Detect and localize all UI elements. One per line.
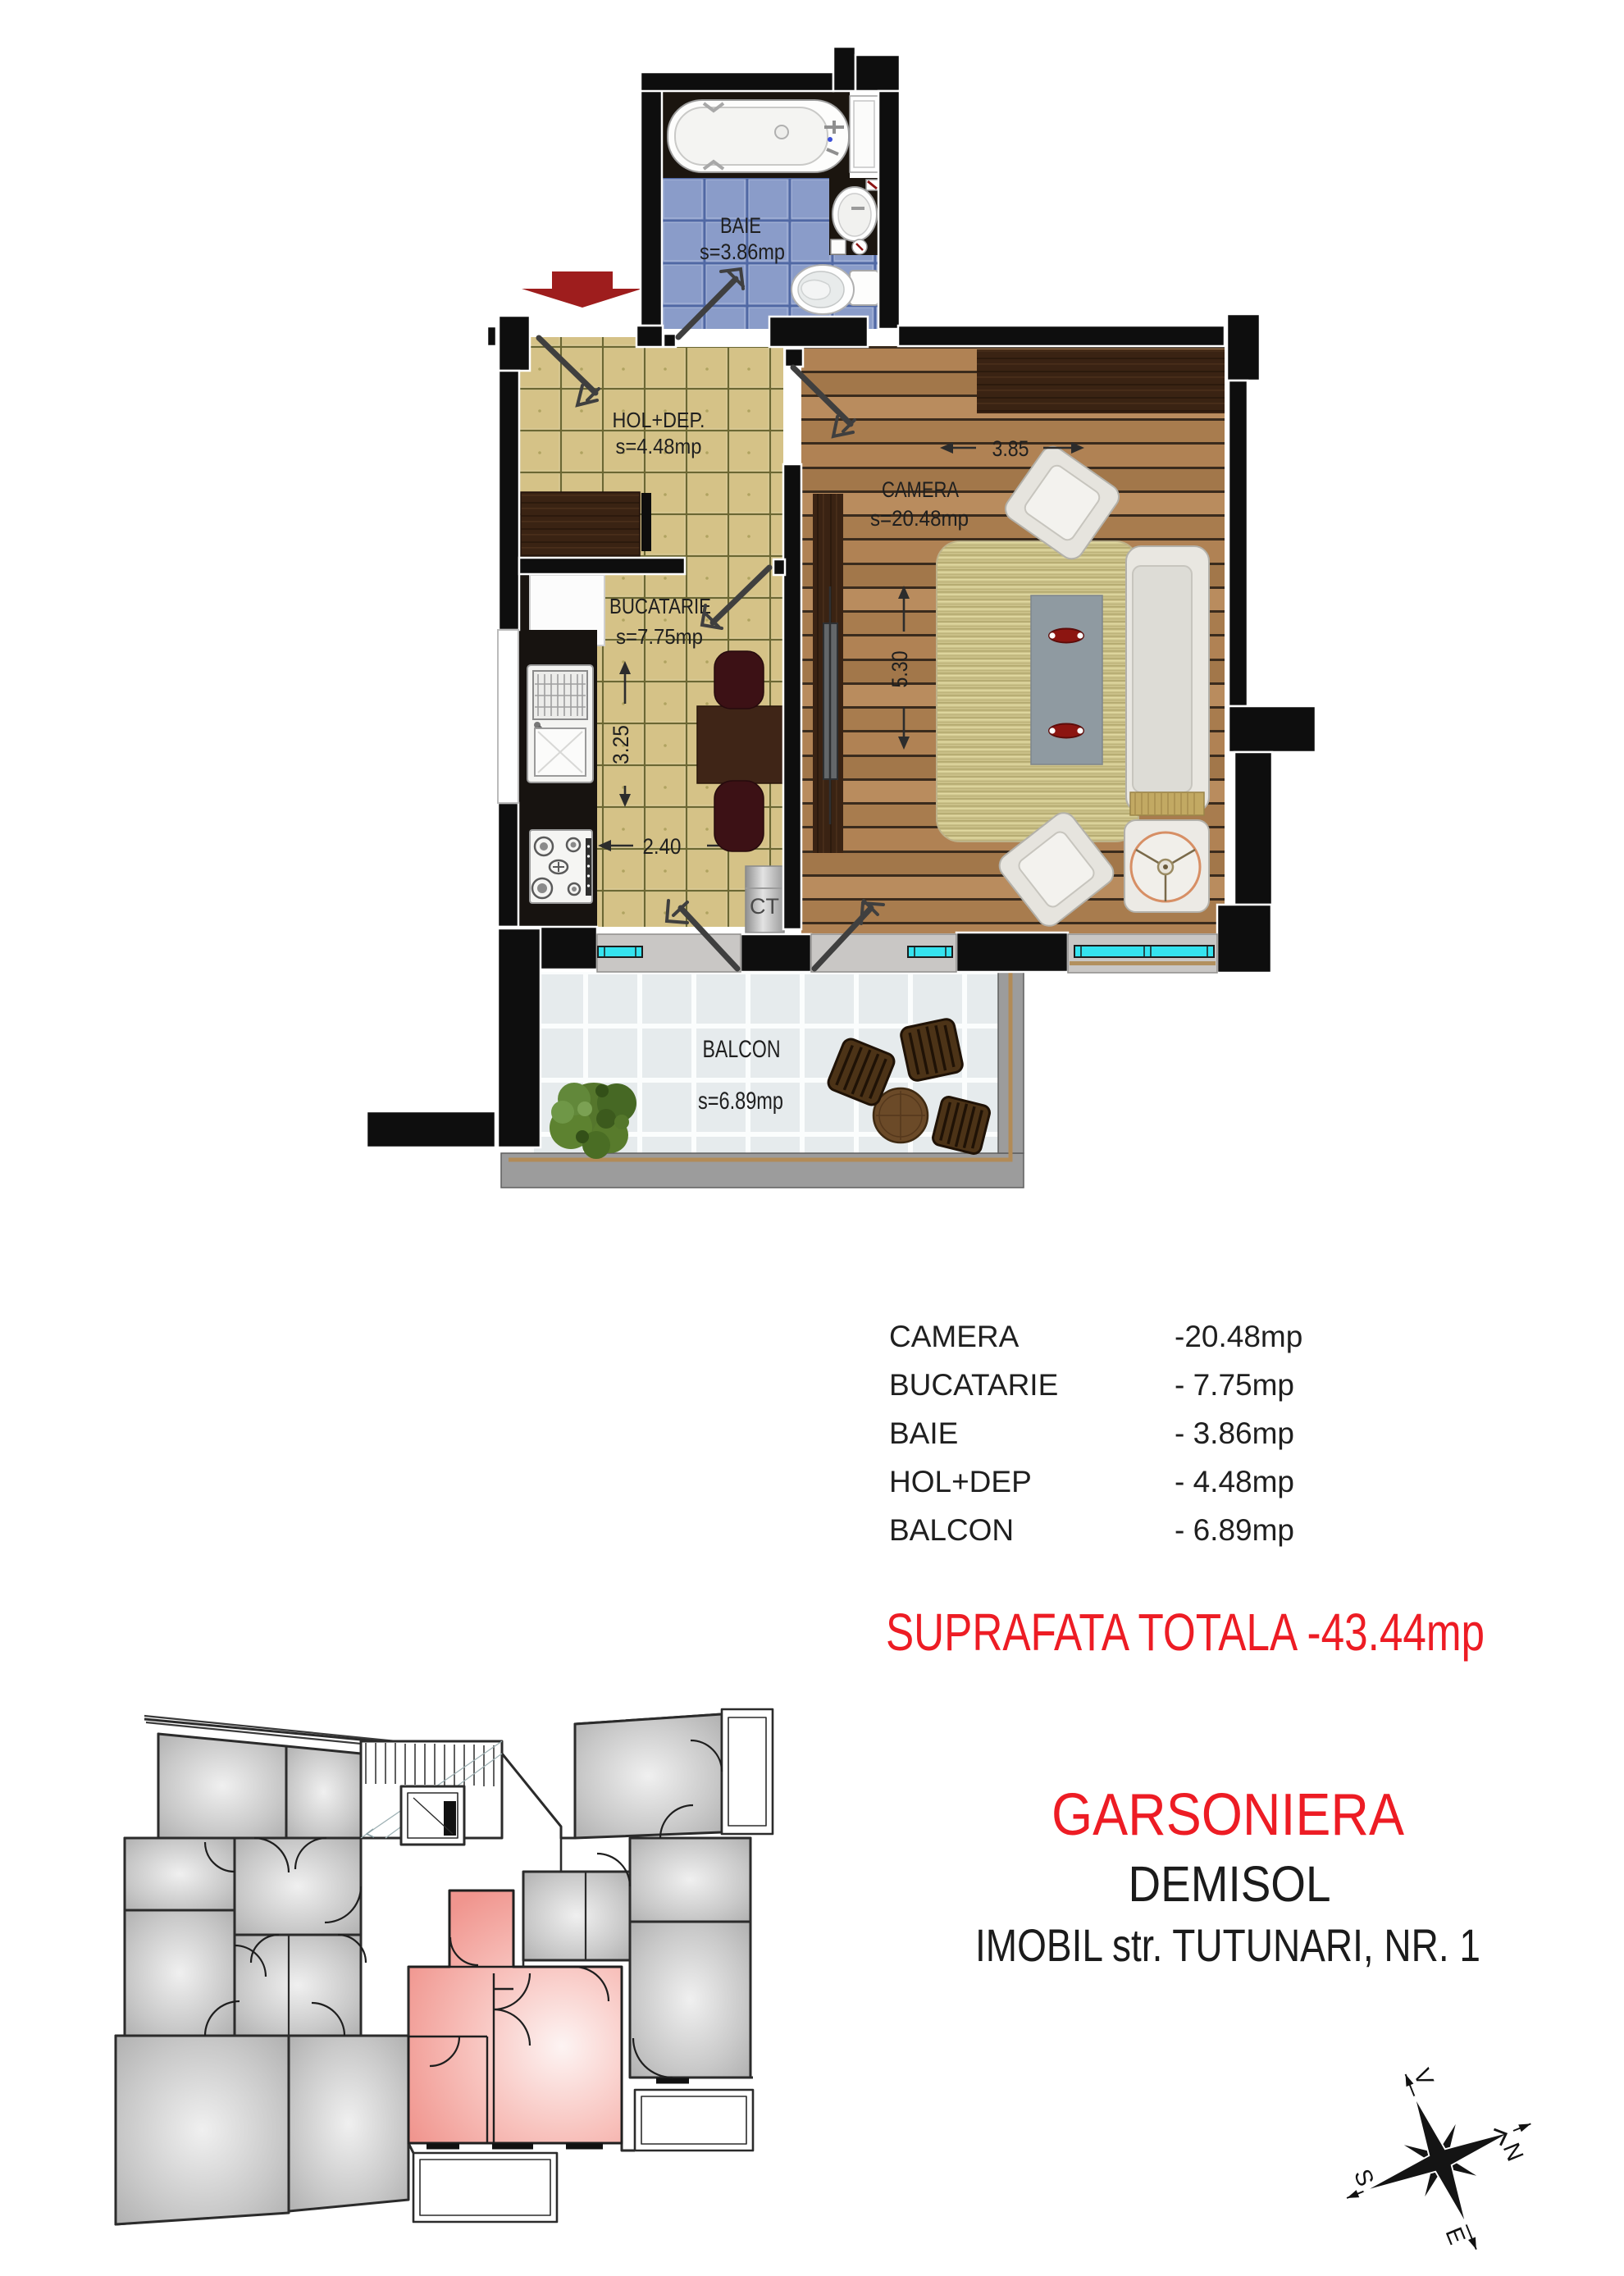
svg-text:BAIE: BAIE [889, 1416, 958, 1450]
svg-text:BAIE: BAIE [720, 213, 761, 238]
svg-text:BUCATARIE: BUCATARIE [889, 1368, 1058, 1402]
svg-text:s=20.48mp: s=20.48mp [870, 506, 969, 531]
svg-text:BUCATARIE: BUCATARIE [609, 594, 711, 618]
svg-text:s=7.75mp: s=7.75mp [616, 624, 703, 649]
svg-text:5.30: 5.30 [887, 651, 912, 688]
svg-text:HOL+DEP.: HOL+DEP. [613, 408, 705, 432]
svg-text:-20.48mp: -20.48mp [1175, 1320, 1302, 1353]
svg-text:2.40: 2.40 [643, 834, 682, 859]
svg-text:- 4.48mp: - 4.48mp [1175, 1465, 1294, 1498]
svg-text:CT: CT [750, 894, 779, 919]
svg-text:- 6.89mp: - 6.89mp [1175, 1513, 1294, 1547]
svg-text:3.85: 3.85 [992, 436, 1029, 461]
svg-text:s=3.86mp: s=3.86mp [700, 239, 785, 264]
svg-text:IMOBIL str. TUTUNARI, NR. 1: IMOBIL str. TUTUNARI, NR. 1 [975, 1919, 1480, 1971]
svg-text:s=4.48mp: s=4.48mp [616, 434, 702, 458]
svg-text:GARSONIERA: GARSONIERA [1051, 1782, 1404, 1848]
svg-text:3.25: 3.25 [609, 725, 633, 764]
svg-text:- 7.75mp: - 7.75mp [1175, 1368, 1294, 1402]
svg-text:DEMISOL: DEMISOL [1129, 1856, 1331, 1912]
svg-text:BALCON: BALCON [889, 1513, 1014, 1547]
svg-text:BALCON: BALCON [703, 1036, 781, 1063]
svg-text:CAMERA: CAMERA [889, 1320, 1020, 1353]
svg-text:- 3.86mp: - 3.86mp [1175, 1416, 1294, 1450]
svg-text:CAMERA: CAMERA [882, 477, 959, 502]
svg-text:HOL+DEP: HOL+DEP [889, 1465, 1032, 1498]
svg-text:s=6.89mp: s=6.89mp [698, 1088, 783, 1115]
svg-text:SUPRAFATA TOTALA -43.44mp: SUPRAFATA TOTALA -43.44mp [886, 1603, 1485, 1662]
